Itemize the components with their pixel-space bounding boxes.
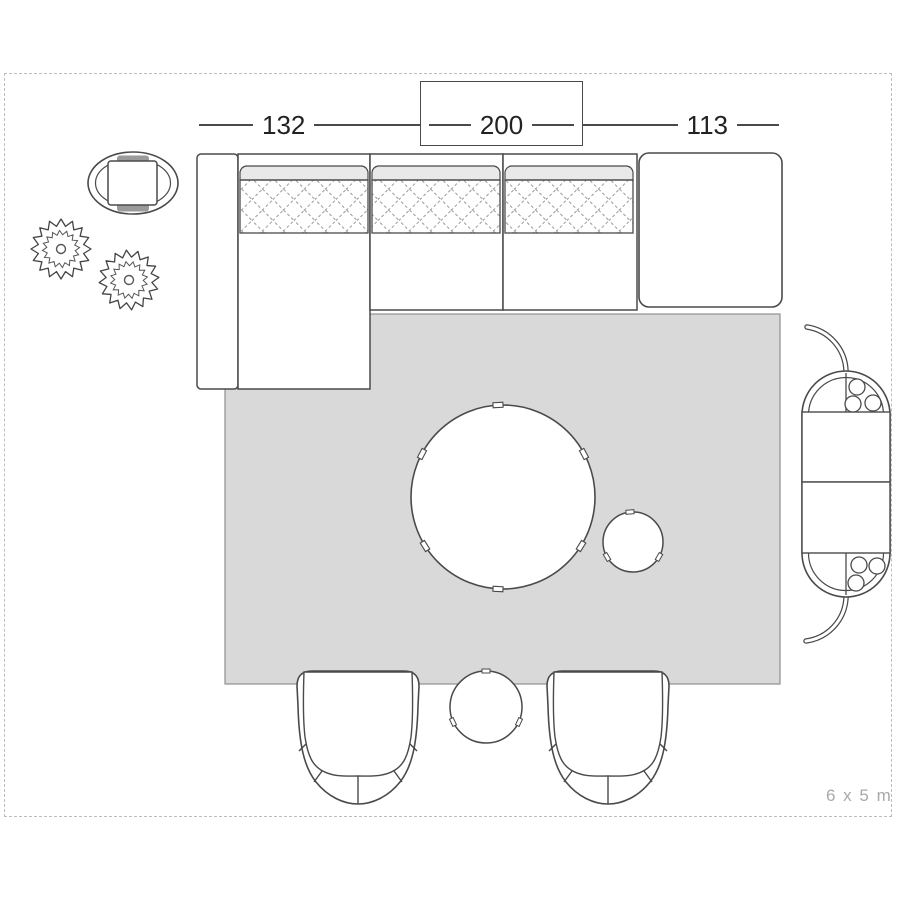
dimension-200: 200 bbox=[429, 111, 574, 139]
ottoman[interactable] bbox=[639, 153, 782, 307]
floor-plan-canvas: 132 200 113 6 x 5 m bbox=[0, 0, 900, 900]
sofa-back-cushion-3 bbox=[505, 166, 633, 233]
plant-1[interactable] bbox=[31, 219, 91, 279]
plant-2[interactable] bbox=[87, 238, 172, 323]
armchair-left[interactable] bbox=[297, 671, 419, 804]
dimension-113: 113 bbox=[583, 111, 779, 139]
bar-cart[interactable] bbox=[802, 327, 890, 641]
dimension-line bbox=[199, 124, 253, 126]
bar-cart-shelf-1 bbox=[802, 412, 890, 482]
dimension-line bbox=[532, 124, 574, 126]
dimension-line bbox=[429, 124, 471, 126]
room-size-label: 6 x 5 m bbox=[826, 786, 892, 806]
dimension-132: 132 bbox=[199, 111, 420, 139]
dimension-box: 200 bbox=[420, 81, 583, 146]
dimension-label: 113 bbox=[687, 111, 728, 139]
dimension-label: 132 bbox=[262, 111, 305, 139]
dimension-line bbox=[583, 124, 678, 126]
bar-cart-shelf-2 bbox=[802, 482, 890, 553]
armchair-right[interactable] bbox=[547, 671, 669, 804]
sofa-armrest[interactable] bbox=[197, 154, 238, 389]
dimension-line bbox=[314, 124, 420, 126]
oval-side-table[interactable] bbox=[88, 152, 178, 214]
coffee-table[interactable] bbox=[411, 402, 595, 592]
dimension-label: 200 bbox=[480, 111, 523, 139]
sofa-back-cushion-2 bbox=[372, 166, 500, 233]
dimension-line bbox=[737, 124, 779, 126]
sofa-back-cushion-1 bbox=[240, 166, 368, 233]
